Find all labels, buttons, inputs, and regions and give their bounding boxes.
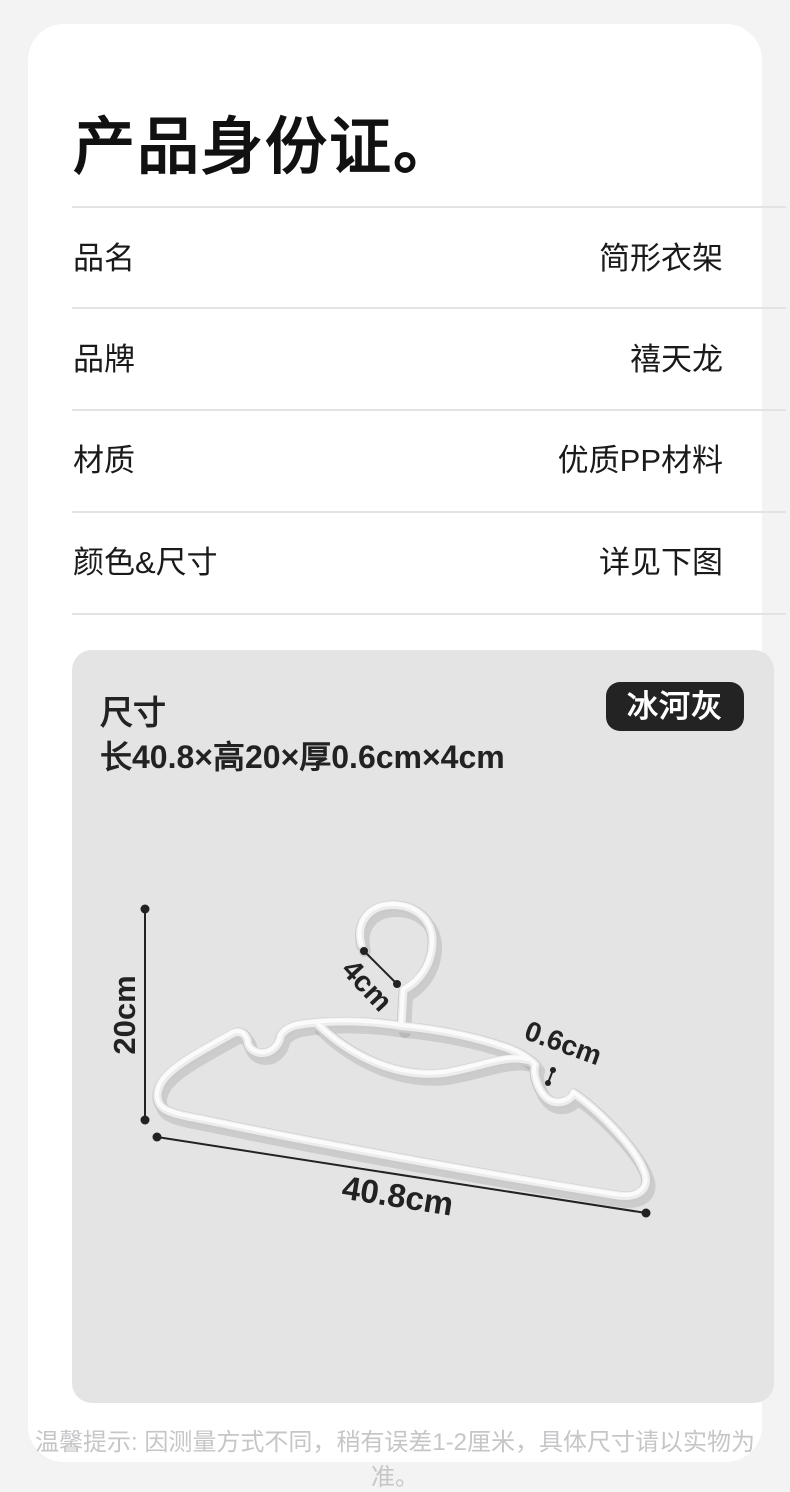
spec-row-brand-label: 品牌 (73, 342, 135, 378)
divider (72, 206, 786, 208)
divider (72, 307, 786, 309)
size-panel-dimensions: 长40.8×高20×厚0.6cm×4cm (100, 732, 505, 778)
size-panel: 尺寸 长40.8×高20×厚0.6cm×4cm 冰河灰 (72, 650, 774, 1403)
spec-row-material-label: 材质 (73, 443, 135, 479)
spec-row-name-label: 品名 (73, 241, 135, 277)
color-badge: 冰河灰 (606, 682, 744, 731)
spec-row-color-size-label: 颜色&尺寸 (73, 545, 218, 581)
divider (72, 409, 786, 411)
divider (72, 613, 786, 615)
spec-row-brand-value: 禧天龙 (630, 342, 723, 378)
divider (72, 511, 786, 513)
product-id-card: 产品身份证。 品名 简形衣架 品牌 禧天龙 材质 优质PP材料 颜色&尺寸 详见… (28, 24, 762, 1462)
size-panel-title: 尺寸 (100, 686, 166, 734)
spec-row-material-value: 优质PP材料 (558, 443, 723, 479)
measurement-disclaimer: 温馨提示: 因测量方式不同，稍有误差1-2厘米，具体尺寸请以实物为准。 (28, 1422, 762, 1492)
spec-row-color-size-value: 详见下图 (599, 545, 723, 581)
page-title: 产品身份证。 (73, 96, 457, 186)
spec-row-name-value: 简形衣架 (599, 241, 723, 277)
